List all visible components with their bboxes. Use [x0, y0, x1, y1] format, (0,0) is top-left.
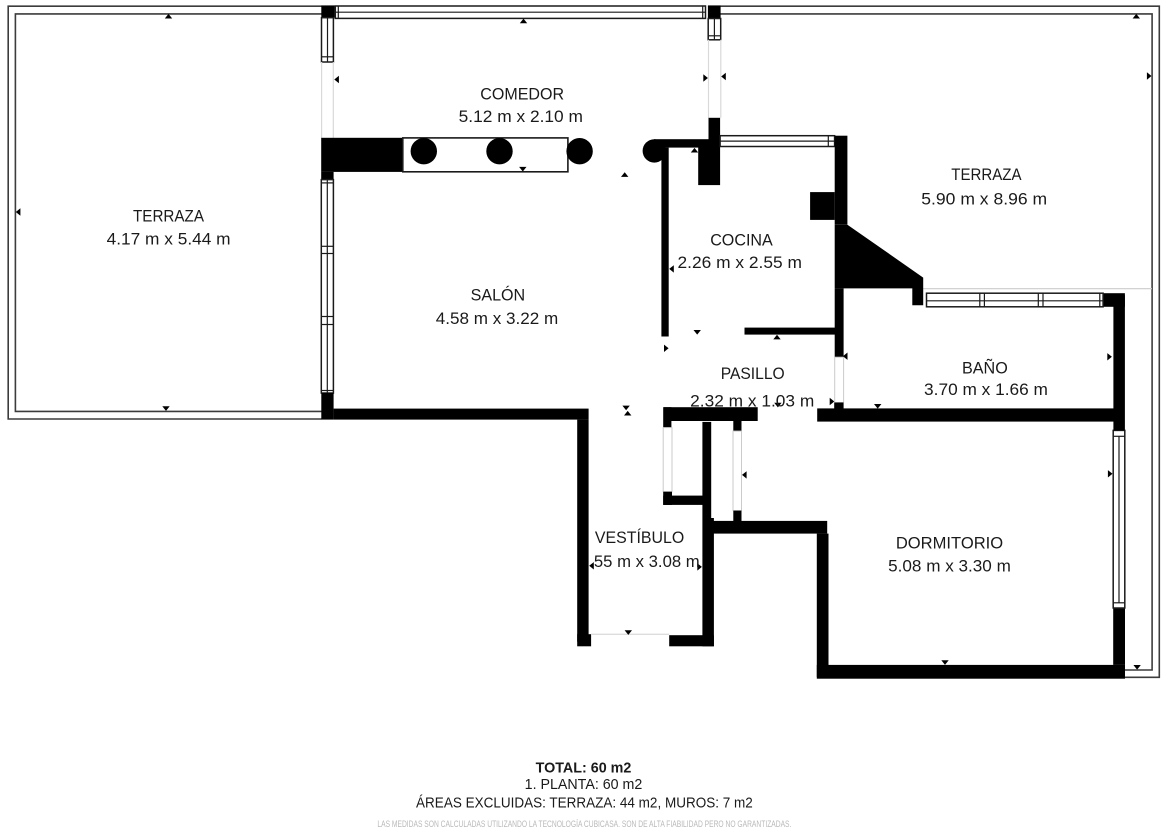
svg-text:5.12 m x 2.10 m: 5.12 m x 2.10 m	[459, 107, 583, 126]
svg-text:COCINA: COCINA	[710, 231, 773, 250]
svg-text:2.32 m x 1.03 m: 2.32 m x 1.03 m	[690, 392, 814, 411]
svg-text:5.90 m x 8.96 m: 5.90 m x 8.96 m	[921, 190, 1047, 209]
svg-text:VESTÍBULO: VESTÍBULO	[595, 528, 684, 547]
svg-text:BAÑO: BAÑO	[962, 358, 1008, 377]
svg-text:TERRAZA: TERRAZA	[133, 207, 205, 226]
svg-text:4.58 m x 3.22 m: 4.58 m x 3.22 m	[436, 309, 558, 328]
svg-text:2.26 m x 2.55 m: 2.26 m x 2.55 m	[678, 253, 802, 272]
svg-text:DORMITORIO: DORMITORIO	[896, 533, 1003, 552]
svg-text:TOTAL: 60 m2: TOTAL: 60 m2	[536, 760, 632, 777]
svg-text:SALÓN: SALÓN	[471, 285, 526, 304]
svg-text:LAS MEDIDAS SON CALCULADAS UTI: LAS MEDIDAS SON CALCULADAS UTILIZANDO LA…	[377, 819, 791, 829]
svg-text:PASILLO: PASILLO	[721, 364, 785, 383]
svg-text:1. PLANTA: 60 m2: 1. PLANTA: 60 m2	[525, 776, 643, 793]
svg-text:COMEDOR: COMEDOR	[480, 85, 564, 104]
svg-text:5.08 m x 3.30 m: 5.08 m x 3.30 m	[888, 556, 1011, 575]
svg-text:55 m x 3.08 m: 55 m x 3.08 m	[594, 552, 700, 571]
svg-text:ÁREAS EXCLUIDAS: TERRAZA: 44 m: ÁREAS EXCLUIDAS: TERRAZA: 44 m2, MUROS: …	[416, 795, 753, 812]
svg-text:3.70 m x 1.66 m: 3.70 m x 1.66 m	[924, 380, 1048, 399]
svg-text:TERRAZA: TERRAZA	[951, 165, 1022, 184]
svg-text:4.17 m x 5.44 m: 4.17 m x 5.44 m	[107, 229, 231, 248]
